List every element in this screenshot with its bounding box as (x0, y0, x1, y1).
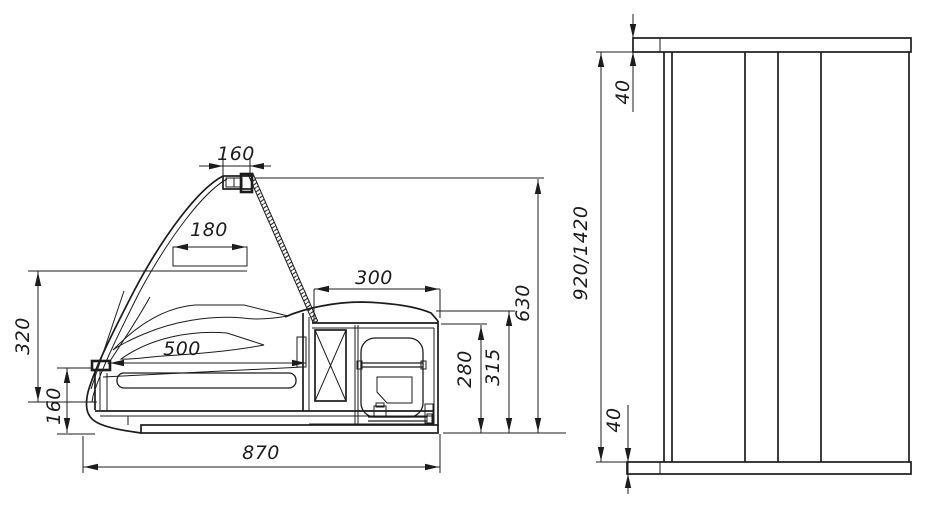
glass-section-hatched (248, 173, 317, 323)
base-plinth (95, 411, 438, 433)
dim-machine-300: 300 (314, 267, 440, 322)
side-view: 160 180 300 500 870 (12, 143, 566, 473)
dim-label-lamp-width: 160 (217, 143, 255, 165)
dim-label-shelf-depth: 180 (190, 219, 228, 241)
dim-overall-630: 630 (255, 178, 566, 433)
dim-label-machine-height: 280 (454, 350, 476, 388)
dim-glass-320: 320 (12, 271, 97, 402)
dim-label-top-panel: 40 (612, 79, 634, 104)
dim-label-well-depth: 500 (163, 338, 201, 360)
interior-shelf (28, 247, 247, 271)
canopy-lamp (223, 174, 252, 192)
drawing-sheet: 160 180 300 500 870 (0, 0, 927, 514)
dim-label-overall-depth: 870 (242, 442, 280, 464)
technical-drawing-canvas: 160 180 300 500 870 (0, 0, 927, 514)
dim-label-counter-height: 315 (482, 348, 504, 386)
condenser-crossed-box (315, 330, 346, 401)
body-panels (664, 52, 909, 462)
dim-machine-280: 280 (441, 324, 487, 433)
dim-label-glass-height: 320 (12, 317, 34, 355)
dim-label-front-overall-height: 920/1420 (570, 205, 592, 300)
dim-label-base-panel: 40 (603, 407, 625, 432)
front-view: 40 920/1420 40 (570, 14, 911, 494)
dim-height-920-1420: 920/1420 (570, 52, 604, 462)
air-duct-profile (103, 305, 303, 377)
dim-label-overall-height: 630 (512, 284, 534, 322)
base-panel (627, 462, 911, 474)
dim-label-front-height: 160 (43, 387, 65, 425)
countertop-panel (633, 38, 911, 52)
dim-well-500: 500 (110, 338, 306, 366)
dim-shelf-180: 180 (174, 219, 246, 250)
dim-lamp-160: 160 (199, 143, 271, 175)
dim-overall-870: 870 (83, 434, 440, 473)
dim-label-machine-depth: 300 (355, 267, 393, 289)
